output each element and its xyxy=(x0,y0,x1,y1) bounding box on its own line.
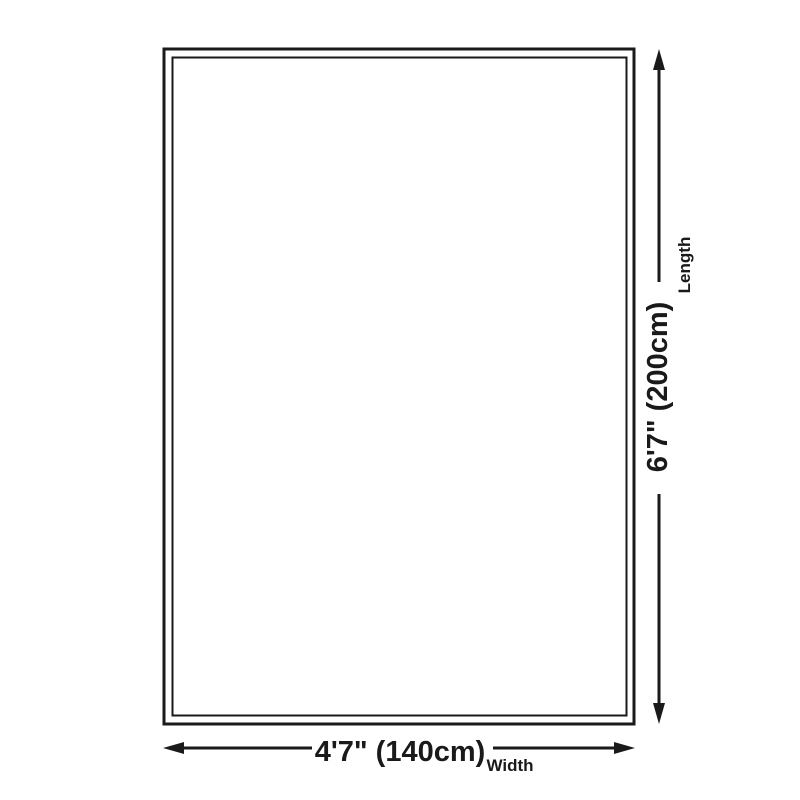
width-dimension: 4'7" (140cm) Width xyxy=(163,736,635,775)
width-value-label: 4'7" (140cm) xyxy=(315,736,486,768)
length-value-label: 6'7" (200cm) xyxy=(642,302,674,473)
arrow-down-icon xyxy=(653,703,665,724)
dimension-diagram: 6'7" (200cm) Length 4'7" (140cm) Width xyxy=(0,0,800,800)
length-dimension: 6'7" (200cm) Length xyxy=(642,49,694,724)
dimension-diagram-canvas: 6'7" (200cm) Length 4'7" (140cm) Width xyxy=(0,0,800,800)
arrow-right-icon xyxy=(614,742,635,754)
arrow-left-icon xyxy=(163,742,184,754)
length-axis-label: Length xyxy=(675,237,694,294)
width-axis-label: Width xyxy=(486,756,533,775)
arrow-up-icon xyxy=(653,49,665,70)
product-outline-inner xyxy=(173,58,627,716)
